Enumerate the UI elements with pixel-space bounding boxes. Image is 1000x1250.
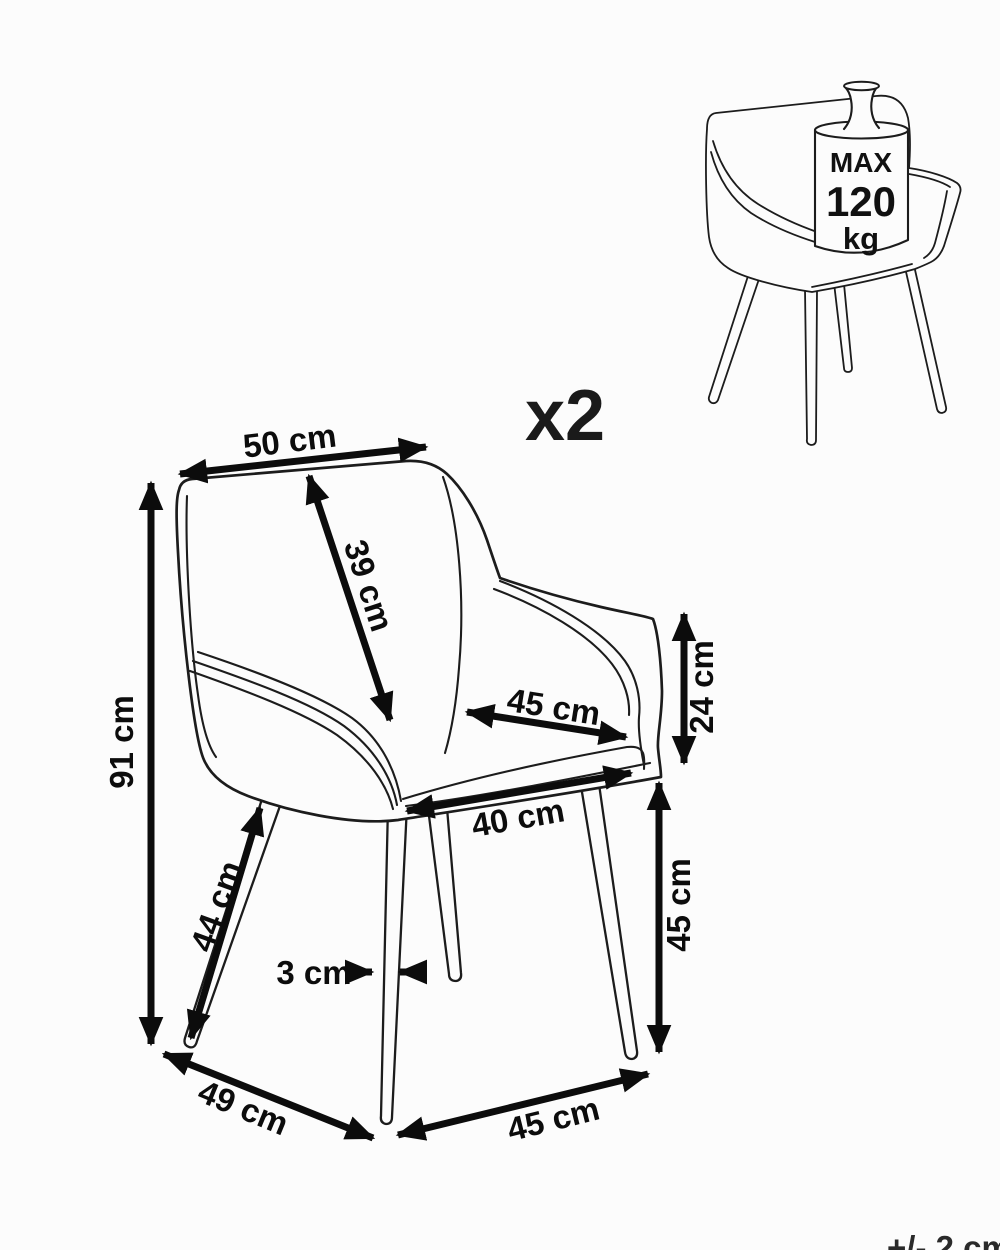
mini-chair-front-right-leg [805,289,817,445]
dim-seat-height: 45 cm [659,783,697,1052]
chair-front-right-leg [381,805,407,1124]
dim-base-width: 45 cm [398,1074,648,1148]
dim-front-leg-length: 44 cm [183,808,260,1038]
mini-chair-front-left-leg [709,276,759,403]
capacity-value-label: 120 [826,178,896,225]
diagram-canvas: MAX 120 kg 50 cm 39 cm 91 cm 45 cm 24 cm [0,0,1000,1250]
dim-base-depth: 49 cm [164,1054,373,1142]
dim-total-height-label: 91 cm [103,695,140,789]
weight-top-cap [844,82,879,90]
dim-leg-thickness-label: 3 cm [276,954,351,991]
dim-armrest-drop: 24 cm [683,614,720,763]
chair-rear-center-leg [428,808,461,981]
capacity-illustration: MAX 120 kg [706,82,961,445]
mini-chair-rear-center-leg [834,283,852,372]
mini-chair-rear-right-leg [904,261,946,413]
dim-seat-height-label: 45 cm [660,858,697,952]
chair-line-drawing [177,461,662,1124]
capacity-max-label: MAX [830,147,893,178]
capacity-unit-label: kg [843,221,879,256]
dimension-diagram-page: MAX 120 kg 50 cm 39 cm 91 cm 45 cm 24 cm [0,0,1000,1250]
tolerance-label: +/- 2 cm [887,1229,1000,1250]
dim-armrest-drop-label: 24 cm [683,640,720,734]
chair-rear-right-leg [578,768,637,1059]
dim-total-height: 91 cm [103,483,151,1044]
quantity-label: x2 [525,376,605,456]
